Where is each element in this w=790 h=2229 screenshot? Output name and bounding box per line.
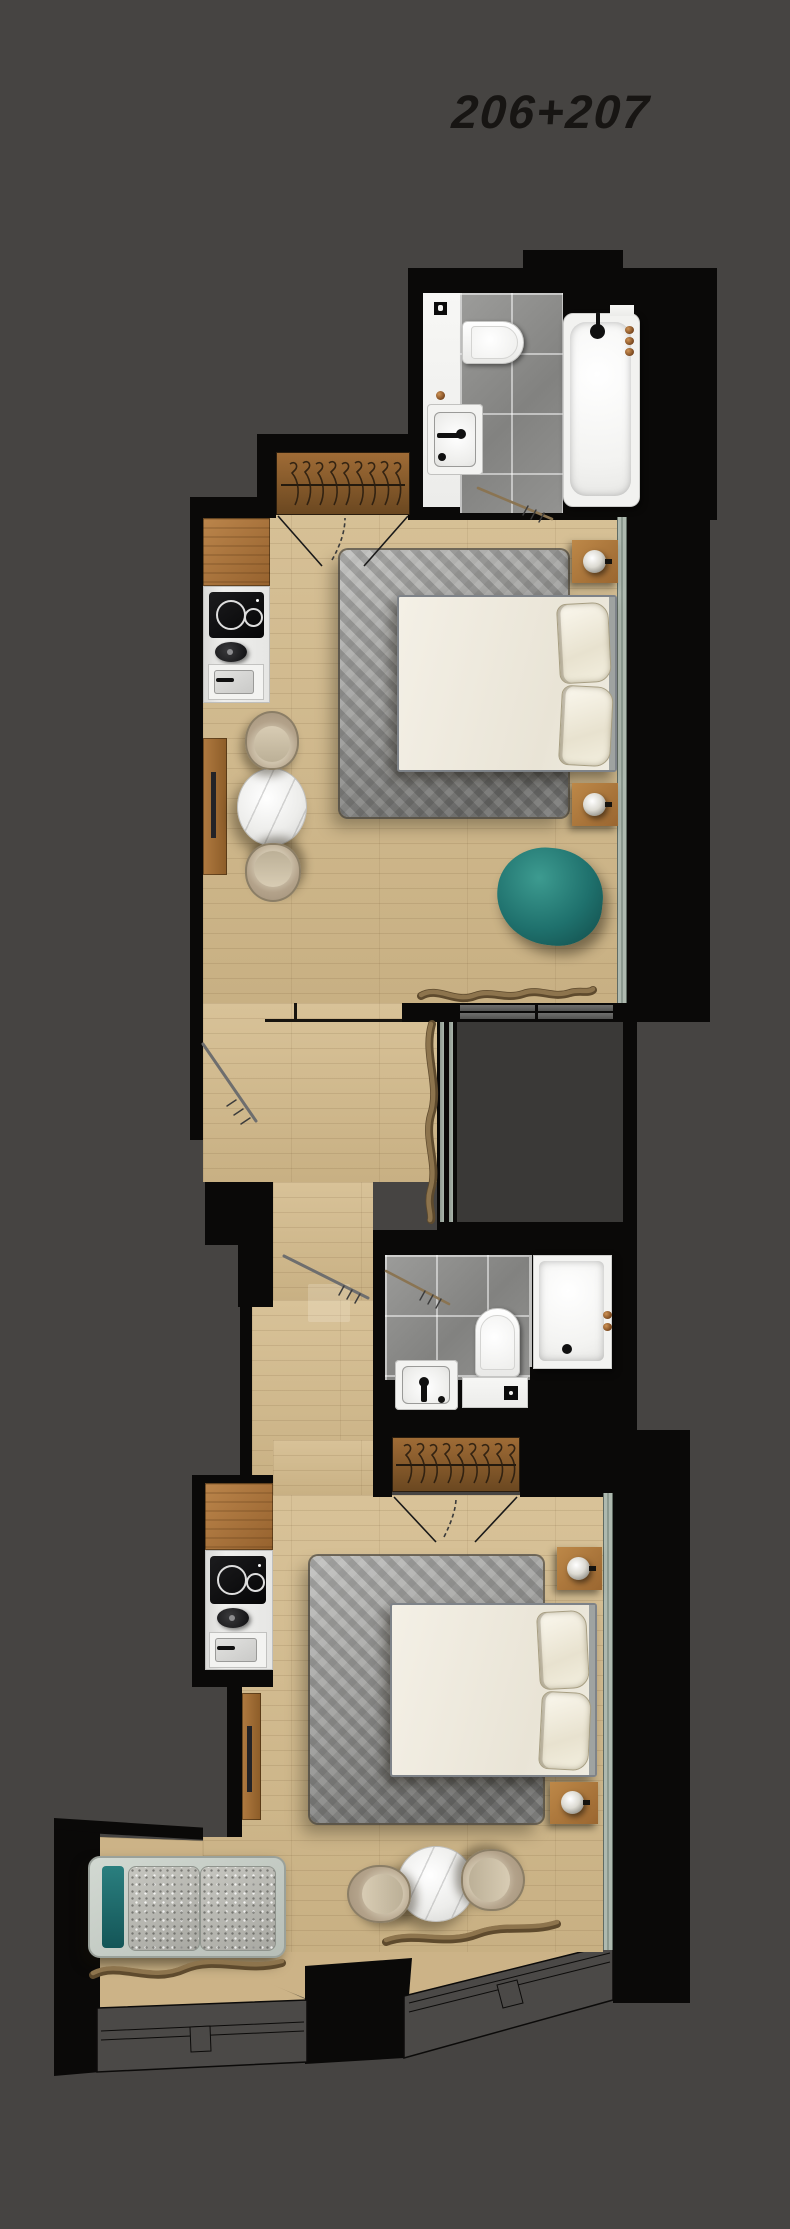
tub-tap: [625, 326, 634, 334]
toilet-207: [475, 1308, 520, 1377]
hob-controls: [258, 1564, 261, 1567]
nightstand-206-b: [572, 783, 618, 826]
faucet-handle: [456, 429, 466, 439]
bathtub-interior: [570, 322, 631, 496]
hall-window-frame: [449, 1022, 453, 1222]
washbasin-207: [395, 1360, 458, 1410]
tv-icon: [247, 1726, 252, 1792]
washbasin-206: [427, 404, 483, 475]
armchair-206-b: [245, 843, 301, 902]
kettle-207: [217, 1608, 249, 1628]
corridor-step-wall-a: [205, 1182, 273, 1245]
burner: [244, 608, 263, 627]
basin: [215, 1638, 257, 1662]
pillow: [556, 602, 612, 685]
toilet-paper-roll: [438, 305, 443, 311]
wardrobe-206-side-wall: [257, 453, 276, 517]
pillow: [558, 685, 614, 768]
shower-207: [533, 1255, 612, 1369]
room-206-right-wall: [627, 520, 710, 1022]
round-table-206: [237, 768, 307, 846]
nightstand-207-a: [557, 1547, 602, 1590]
wardrobe-207-right-wall: [520, 1440, 613, 1497]
corridor-floor-upper: [203, 1003, 437, 1182]
faucet-handle: [419, 1377, 429, 1387]
tv-console-207: [242, 1693, 261, 1820]
tv-icon: [211, 772, 216, 838]
shower-tap: [603, 1311, 612, 1319]
toilet-bowl: [471, 326, 518, 359]
hanging-rail-icon: [276, 452, 410, 515]
kettle-lid: [227, 649, 233, 655]
daybed-207: [88, 1856, 286, 1958]
lightwell: [457, 1022, 623, 1222]
drain: [438, 1396, 445, 1403]
double-bed-207: [390, 1603, 597, 1777]
drain: [438, 453, 446, 461]
armchair-207-b: [461, 1849, 525, 1911]
room-206-south-window: [460, 1005, 535, 1011]
entry-207-left-wall: [240, 1305, 252, 1477]
floor-plan-page: 206+207: [0, 0, 790, 2229]
bathtub-shelf: [610, 305, 634, 316]
shower-glass: [529, 1255, 532, 1367]
shower-head-icon: [590, 324, 605, 339]
table-lamp-icon: [583, 793, 606, 816]
armchair-206-a: [245, 711, 299, 770]
basin: [214, 670, 254, 694]
duct-notch: [523, 250, 623, 270]
page-title: 206+207: [450, 84, 704, 139]
room-206-south-window: [538, 1013, 613, 1019]
shower-tap: [603, 1323, 612, 1331]
table-lamp-icon: [567, 1557, 590, 1580]
table-lamp-icon: [561, 1791, 584, 1814]
room-206-left-wall: [190, 497, 203, 1140]
chair-cushion: [254, 851, 292, 887]
daybed-cushion: [128, 1866, 200, 1951]
induction-hob-207: [210, 1556, 266, 1604]
double-bed-206: [397, 595, 617, 772]
faucet: [216, 678, 234, 682]
kitchen-207-bottom-wall: [192, 1670, 273, 1687]
kettle-lid: [229, 1615, 235, 1621]
threshold-line: [265, 1019, 402, 1022]
room-206-south-window: [538, 1005, 613, 1011]
flush-plate-icon: [504, 1386, 518, 1400]
bathtub-206: [563, 313, 640, 507]
kitchen-207-left-wall: [192, 1475, 205, 1687]
daybed-cushion: [200, 1866, 276, 1951]
window-band-left: [97, 2000, 307, 2072]
room-207-right-wall: [613, 1430, 690, 2003]
entry-doormat: [308, 1284, 350, 1322]
wardrobe-207: [392, 1437, 520, 1492]
threshold-mullion: [294, 1003, 297, 1019]
room-206-south-window: [460, 1013, 535, 1019]
toilet-206: [462, 321, 524, 364]
toilet-bowl: [480, 1315, 515, 1370]
tv-console-206: [203, 738, 227, 875]
wall-valve: [436, 391, 445, 400]
drain: [562, 1344, 572, 1354]
toilet-paper-holder-icon: [434, 302, 447, 315]
burner: [217, 1565, 247, 1595]
headboard: [589, 1605, 595, 1775]
hob-controls: [256, 599, 259, 602]
pillow: [538, 1691, 592, 1772]
burner: [246, 1573, 265, 1592]
bg-patch-top-left: [203, 453, 257, 497]
kitchen-sink-207: [209, 1632, 267, 1668]
corridor-step-wall-b: [238, 1245, 273, 1307]
chair-cushion: [362, 1874, 403, 1914]
chair-cushion: [469, 1858, 510, 1902]
room-207-window: [603, 1493, 613, 1950]
induction-hob-206: [209, 592, 264, 638]
bg-patch-console-gap: [203, 1687, 227, 1837]
tub-tap: [625, 337, 634, 345]
kitchen-sink-206: [208, 664, 264, 700]
chair-cushion: [254, 726, 290, 762]
console-207-wall: [227, 1687, 242, 1837]
wardrobe-206-top-wall: [257, 434, 410, 453]
kettle-206: [215, 642, 247, 662]
nightstand-207-b: [550, 1782, 598, 1824]
cistern-shelf-207: [462, 1377, 528, 1408]
armchair-207-a: [347, 1865, 411, 1923]
kitchen-counter-207: [205, 1483, 273, 1550]
lightwell-right-edge: [623, 1022, 637, 1230]
flush-button: [509, 1391, 513, 1395]
table-lamp-icon: [583, 550, 606, 573]
faucet: [217, 1646, 235, 1650]
wardrobe-206: [276, 452, 410, 515]
tub-tap: [625, 348, 634, 356]
kitchen-counter-206: [203, 518, 270, 586]
pillow: [536, 1610, 590, 1691]
burner: [216, 600, 246, 630]
hanging-rail-icon: [392, 1437, 520, 1492]
nightstand-206-a: [572, 540, 618, 583]
wardrobe-207-left-wall: [373, 1440, 392, 1497]
daybed-teal-cushion: [102, 1866, 124, 1948]
room-206-window: [617, 517, 627, 1003]
hall-window-frame: [440, 1022, 444, 1222]
